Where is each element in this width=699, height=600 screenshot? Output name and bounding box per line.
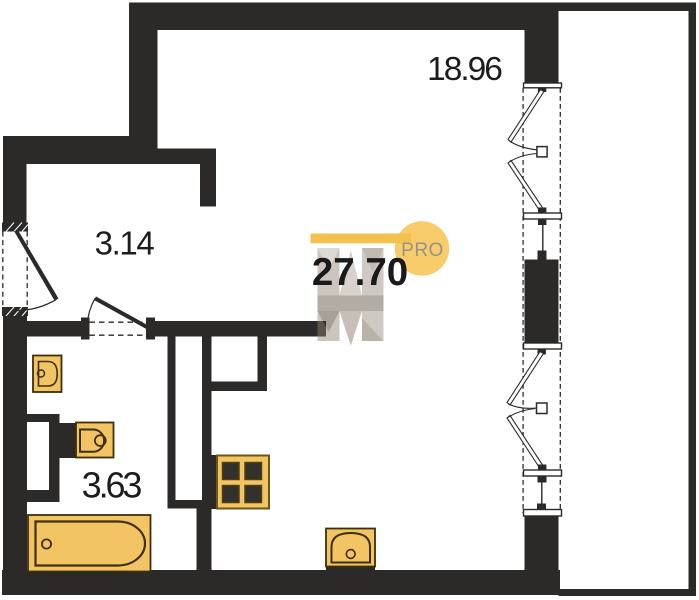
- svg-text:3.14: 3.14: [95, 225, 155, 262]
- svg-text:3.63: 3.63: [82, 465, 142, 506]
- svg-text:18.96: 18.96: [427, 51, 502, 88]
- svg-text:27.70: 27.70: [312, 251, 408, 294]
